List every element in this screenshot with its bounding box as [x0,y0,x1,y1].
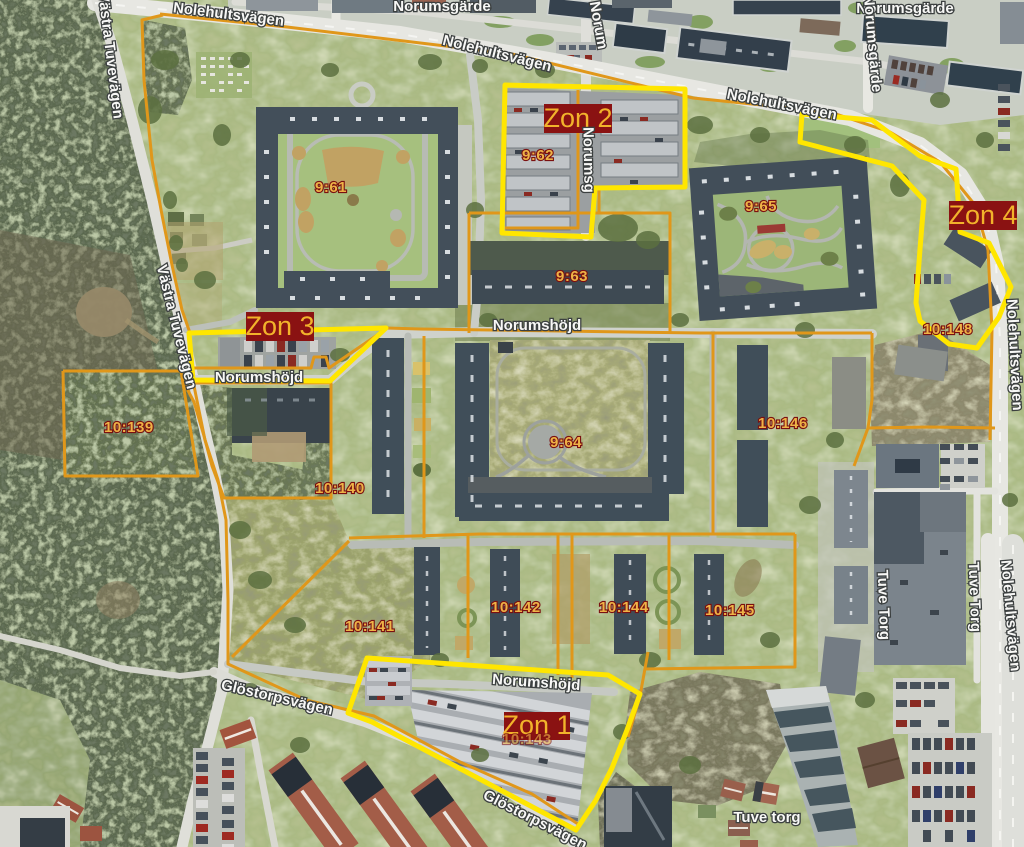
svg-text:10:140: 10:140 [315,480,365,497]
svg-text:9:65: 9:65 [745,198,777,215]
svg-text:Norumshöjd: Norumshöjd [493,317,581,334]
svg-text:10:141: 10:141 [345,618,395,635]
svg-text:10:142: 10:142 [491,599,541,616]
svg-text:9:64: 9:64 [550,434,582,451]
svg-text:10:146: 10:146 [758,415,808,432]
svg-text:Zon 4: Zon 4 [948,200,1017,230]
svg-text:Norumsg: Norumsg [579,127,597,193]
svg-text:Tuve Torg: Tuve Torg [874,569,893,640]
svg-text:9:62: 9:62 [522,147,554,164]
svg-text:10:145: 10:145 [705,602,755,619]
svg-text:10:139: 10:139 [104,419,154,436]
svg-text:Norumsgärde: Norumsgärde [393,0,491,15]
svg-text:Zon 3: Zon 3 [245,311,314,341]
svg-text:Tuve torg: Tuve torg [733,809,800,826]
svg-text:10:143: 10:143 [502,731,552,748]
svg-text:10:144: 10:144 [599,599,649,616]
svg-text:9:63: 9:63 [556,268,588,285]
svg-text:Zon 2: Zon 2 [543,103,612,133]
svg-text:Norumshöjd: Norumshöjd [215,369,303,386]
svg-text:9:61: 9:61 [315,179,347,196]
svg-text:Tuve Torg: Tuve Torg [965,561,984,632]
svg-text:10:148: 10:148 [923,321,973,338]
